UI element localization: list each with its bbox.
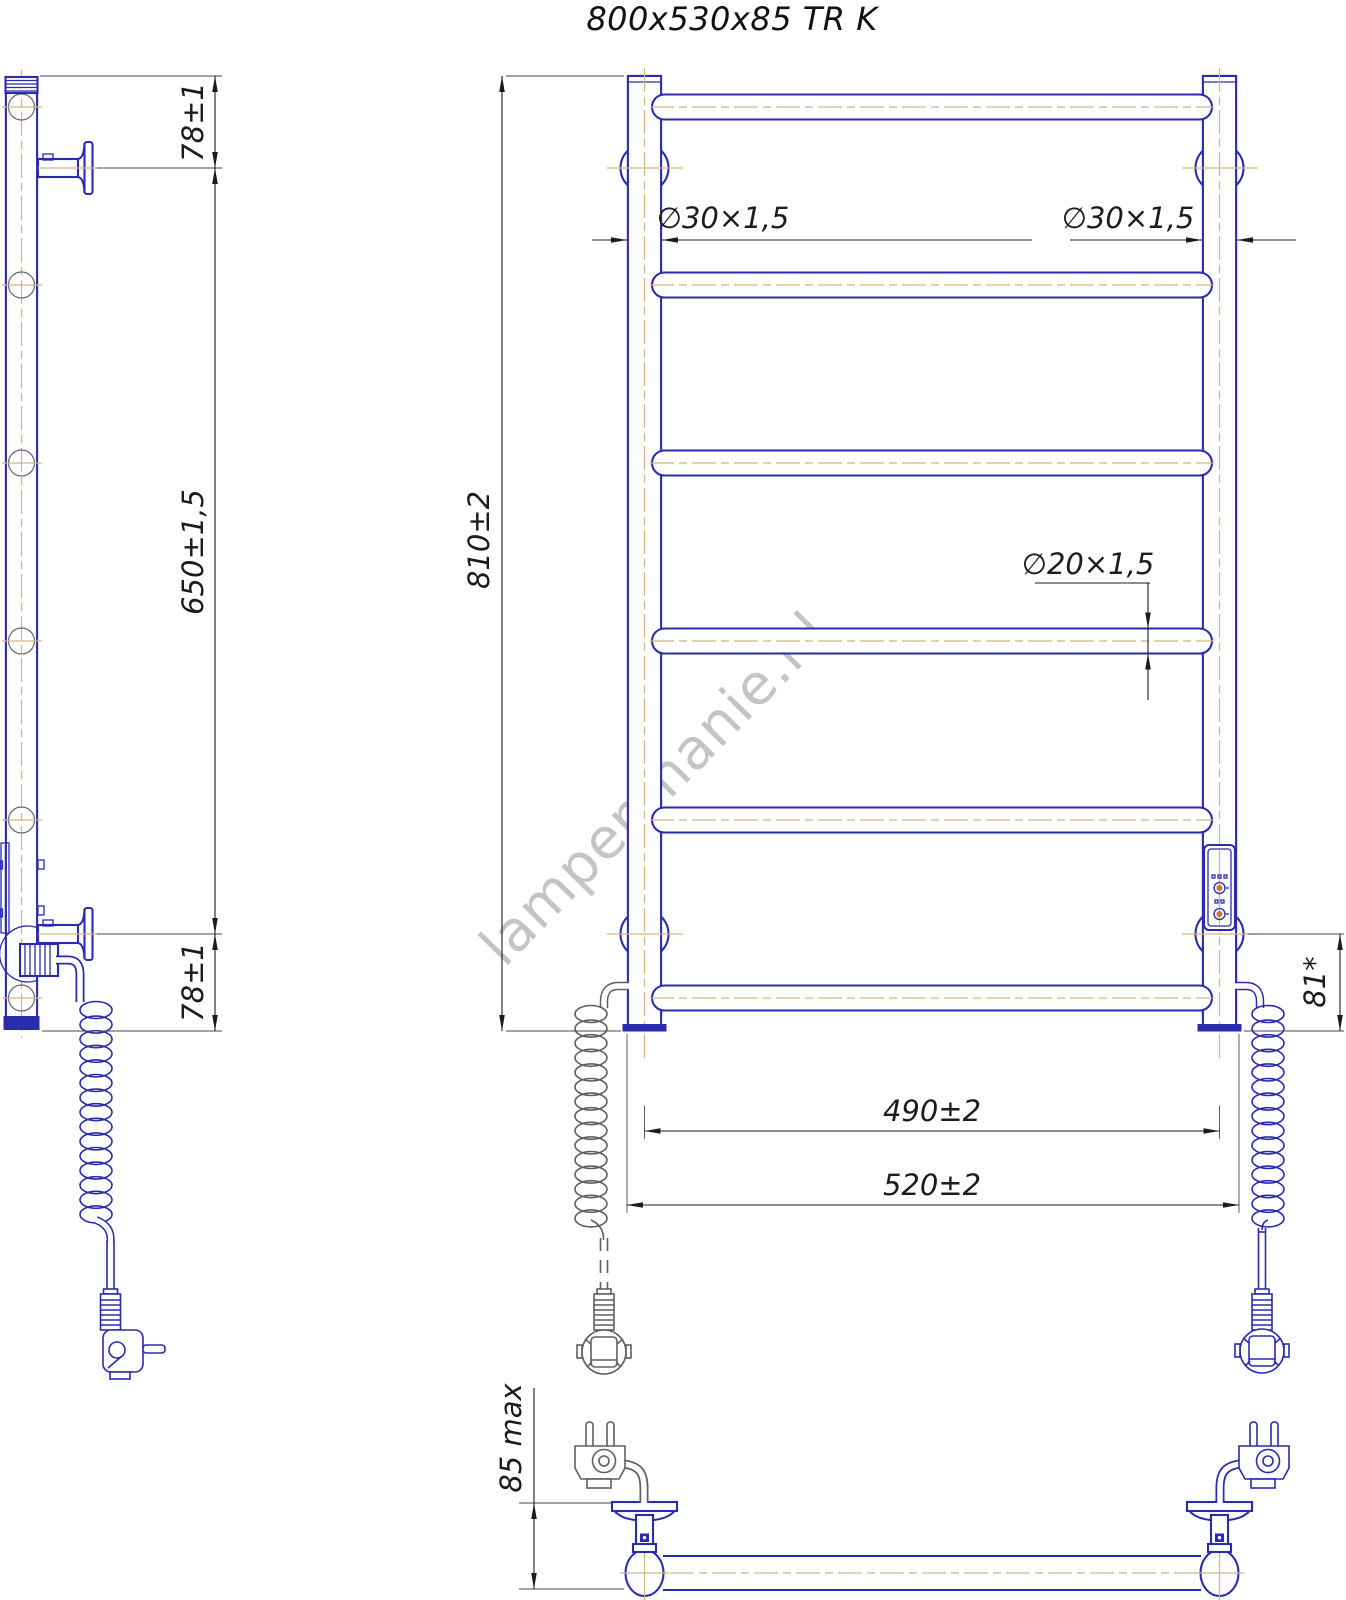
dim-span-outer: 520±2 <box>883 1168 981 1202</box>
control-panel <box>1204 845 1235 930</box>
technical-drawing: lampenmanie.nl 800x530x85 TR K <box>0 0 1346 1600</box>
dim-rung: ∅20×1,5 <box>1022 547 1155 581</box>
drawing-title: 800x530x85 TR K <box>586 0 880 38</box>
dim-side-top: 78±1 <box>176 82 210 162</box>
side-top-plug <box>6 77 38 93</box>
dim-front-height: 810±2 <box>462 491 496 589</box>
dim-bracket-offset: 81* <box>1298 956 1332 1007</box>
dim-span-centers: 490±2 <box>883 1094 981 1128</box>
foot-left <box>623 1024 667 1032</box>
dim-depth: 85 max <box>494 1383 528 1493</box>
dim-collector-right: ∅30×1,5 <box>1062 201 1195 235</box>
dim-collector-left: ∅30×1,5 <box>657 201 790 235</box>
dim-side-height: 650±1,5 <box>176 489 210 615</box>
side-bottom-cap <box>4 1016 40 1030</box>
foot-right <box>1198 1024 1242 1032</box>
drawing-sheet: lampenmanie.nl 800x530x85 TR K <box>0 0 1346 1600</box>
dim-side-bottom: 78±1 <box>176 942 210 1022</box>
